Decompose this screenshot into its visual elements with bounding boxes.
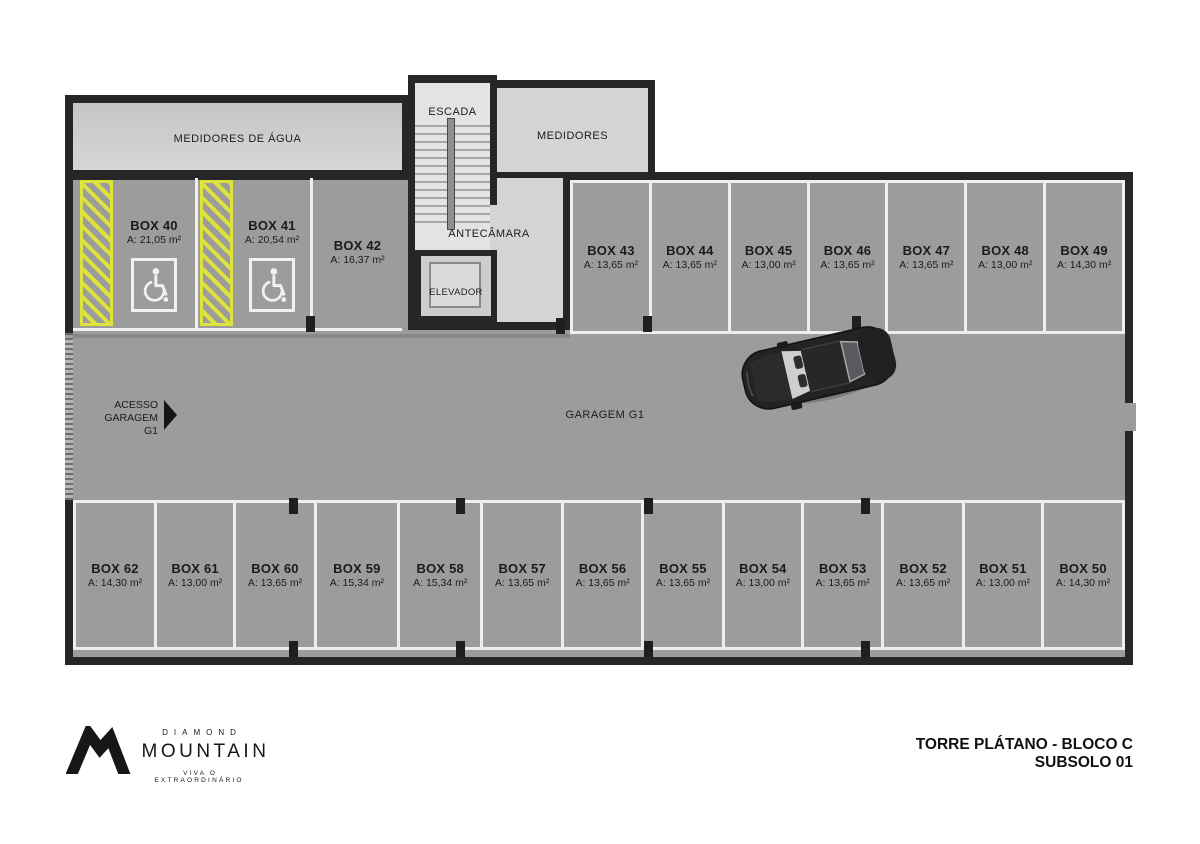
project-title: TORRE PLÁTANO - BLOCO C: [830, 736, 1133, 754]
meters-label: MEDIDORES: [497, 130, 648, 142]
brand-tagline: VIVA O EXTRAORDINÁRIO: [138, 770, 260, 784]
stall-label: BOX 47: [903, 243, 950, 258]
wall-bottom: [65, 657, 1133, 665]
antechamber-label: ANTECÂMARA: [408, 228, 570, 240]
stall-area: A: 14,30 m²: [1057, 259, 1111, 271]
stall-area: A: 15,34 m²: [330, 577, 384, 589]
stall-area: A: 13,65 m²: [663, 259, 717, 271]
parking-stall-box47: BOX 47 A: 13,65 m²: [885, 183, 964, 331]
stall-area: A: 13,65 m²: [575, 577, 629, 589]
antechamber-room: [497, 178, 563, 322]
accessible-hatch-stripe: [200, 180, 233, 326]
access-line2: GARAGEM G1: [88, 412, 158, 438]
brand-wordmark: DIAMOND MOUNTAIN VIVA O EXTRAORDINÁRIO: [138, 728, 260, 784]
column: [644, 641, 653, 657]
wheelchair-icon: [131, 258, 177, 312]
stall-row-upper-left: BOX 40 A: 21,05 m² BOX 41 A: 20,54 m²: [73, 178, 402, 331]
elevator-car: [429, 262, 481, 308]
stall-label: BOX 40: [130, 218, 177, 233]
stall-area: A: 13,65 m²: [656, 577, 710, 589]
stall-label: BOX 61: [171, 561, 218, 576]
column: [861, 498, 870, 514]
stall-label: BOX 42: [334, 238, 381, 253]
slab-edge-shadow: [65, 334, 570, 338]
stall-label: BOX 48: [982, 243, 1029, 258]
parking-stall-box57: BOX 57 A: 13,65 m²: [480, 503, 560, 647]
stall-label: BOX 57: [498, 561, 545, 576]
wall-right-lower: [1125, 431, 1133, 665]
parking-stall-box59: BOX 59 A: 15,34 m²: [314, 503, 397, 647]
parking-stall-box42: BOX 42 A: 16,37 m²: [310, 178, 402, 328]
stall-area: A: 13,65 m²: [584, 259, 638, 271]
stall-label: BOX 62: [91, 561, 138, 576]
stall-area: A: 13,65 m²: [495, 577, 549, 589]
stall-area: A: 21,05 m²: [127, 234, 181, 246]
stall-label: BOX 43: [587, 243, 634, 258]
elevator-label: ELEVADOR: [415, 287, 497, 298]
parking-stall-box50: BOX 50 A: 14,30 m²: [1041, 503, 1122, 647]
column: [456, 498, 465, 514]
column: [643, 316, 652, 332]
stall-area: A: 14,30 m²: [1056, 577, 1110, 589]
access-line1: ACESSO: [88, 399, 158, 412]
column: [289, 641, 298, 657]
parking-stall-box41: BOX 41 A: 20,54 m²: [195, 178, 310, 328]
wall-segment: [563, 172, 570, 330]
stall-label: BOX 41: [248, 218, 295, 233]
column: [861, 641, 870, 657]
column: [306, 316, 315, 332]
stall-label: BOX 55: [659, 561, 706, 576]
parking-stall-box60: BOX 60 A: 13,65 m²: [233, 503, 313, 647]
stairs-handrail: [447, 118, 455, 230]
parking-stall-box45: BOX 45 A: 13,00 m²: [728, 183, 807, 331]
garage-access-label: ACESSO GARAGEM G1: [88, 399, 158, 438]
parking-stall-box55: BOX 55 A: 13,65 m²: [641, 503, 721, 647]
stall-area: A: 13,65 m²: [248, 577, 302, 589]
stall-area: A: 13,00 m²: [736, 577, 790, 589]
mountain-logo-icon: [66, 726, 132, 774]
parking-stall-box43: BOX 43 A: 13,65 m²: [573, 183, 649, 331]
access-arrow-icon: [164, 400, 177, 430]
parking-stall-box40: BOX 40 A: 21,05 m²: [73, 178, 195, 328]
wall-right-upper: [1125, 172, 1133, 403]
column: [289, 498, 298, 514]
stall-area: A: 16,37 m²: [330, 254, 384, 266]
column: [644, 498, 653, 514]
stall-label: BOX 46: [824, 243, 871, 258]
stall-area: A: 13,65 m²: [896, 577, 950, 589]
parking-stall-box53: BOX 53 A: 13,65 m²: [801, 503, 881, 647]
stall-area: A: 20,54 m²: [245, 234, 299, 246]
stall-label: BOX 51: [979, 561, 1026, 576]
brand-name: MOUNTAIN: [138, 741, 260, 763]
parking-stall-box54: BOX 54 A: 13,00 m²: [722, 503, 801, 647]
parking-stall-box48: BOX 48 A: 13,00 m²: [964, 183, 1043, 331]
stall-label: BOX 54: [739, 561, 786, 576]
stall-label: BOX 50: [1059, 561, 1106, 576]
parking-stall-box61: BOX 61 A: 13,00 m²: [154, 503, 233, 647]
parking-stall-box51: BOX 51 A: 13,00 m²: [962, 503, 1041, 647]
water-meters-label: MEDIDORES DE ÁGUA: [73, 133, 402, 145]
column: [556, 318, 565, 334]
brand-top: DIAMOND: [138, 728, 260, 737]
stall-label: BOX 52: [899, 561, 946, 576]
stall-area: A: 13,65 m²: [899, 259, 953, 271]
stall-label: BOX 45: [745, 243, 792, 258]
stall-label: BOX 53: [819, 561, 866, 576]
level-title: SUBSOLO 01: [830, 754, 1133, 772]
wall-top-right: [648, 172, 1133, 180]
parking-stall-box56: BOX 56 A: 13,65 m²: [561, 503, 641, 647]
stall-label: BOX 59: [333, 561, 380, 576]
stall-row-upper-right: BOX 43 A: 13,65 m² BOX 44 A: 13,65 m² BO…: [570, 180, 1125, 334]
stairs-label: ESCADA: [408, 106, 497, 118]
parking-stall-box62: BOX 62 A: 14,30 m²: [76, 503, 154, 647]
stall-area: A: 15,34 m²: [413, 577, 467, 589]
stall-area: A: 13,00 m²: [976, 577, 1030, 589]
stall-area: A: 13,00 m²: [978, 259, 1032, 271]
parking-stall-box44: BOX 44 A: 13,65 m²: [649, 183, 728, 331]
garage-label: GARAGEM G1: [540, 409, 670, 421]
stall-label: BOX 44: [666, 243, 713, 258]
stall-area: A: 14,30 m²: [88, 577, 142, 589]
parking-stall-box52: BOX 52 A: 13,65 m²: [881, 503, 961, 647]
parking-stall-box46: BOX 46 A: 13,65 m²: [807, 183, 886, 331]
wheelchair-icon: [249, 258, 295, 312]
parking-stall-box49: BOX 49 A: 14,30 m²: [1043, 183, 1122, 331]
stall-label: BOX 58: [417, 561, 464, 576]
stall-area: A: 13,00 m²: [742, 259, 796, 271]
stall-area: A: 13,65 m²: [820, 259, 874, 271]
wall-right-opening: [1125, 403, 1136, 431]
ramp-hatch-marks: [65, 333, 73, 500]
stall-label: BOX 60: [251, 561, 298, 576]
stall-row-bottom: BOX 62 A: 14,30 m² BOX 61 A: 13,00 m² BO…: [73, 500, 1125, 650]
sheet-title-block: TORRE PLÁTANO - BLOCO C SUBSOLO 01: [830, 736, 1133, 772]
floorplan-sheet: BOX 40 A: 21,05 m² BOX 41 A: 20,54 m²: [0, 0, 1200, 844]
accessible-hatch-stripe: [80, 180, 113, 326]
stall-label: BOX 49: [1060, 243, 1107, 258]
column: [456, 641, 465, 657]
parking-stall-box58: BOX 58 A: 15,34 m²: [397, 503, 480, 647]
stall-area: A: 13,00 m²: [168, 577, 222, 589]
stall-label: BOX 56: [579, 561, 626, 576]
stall-area: A: 13,65 m²: [816, 577, 870, 589]
